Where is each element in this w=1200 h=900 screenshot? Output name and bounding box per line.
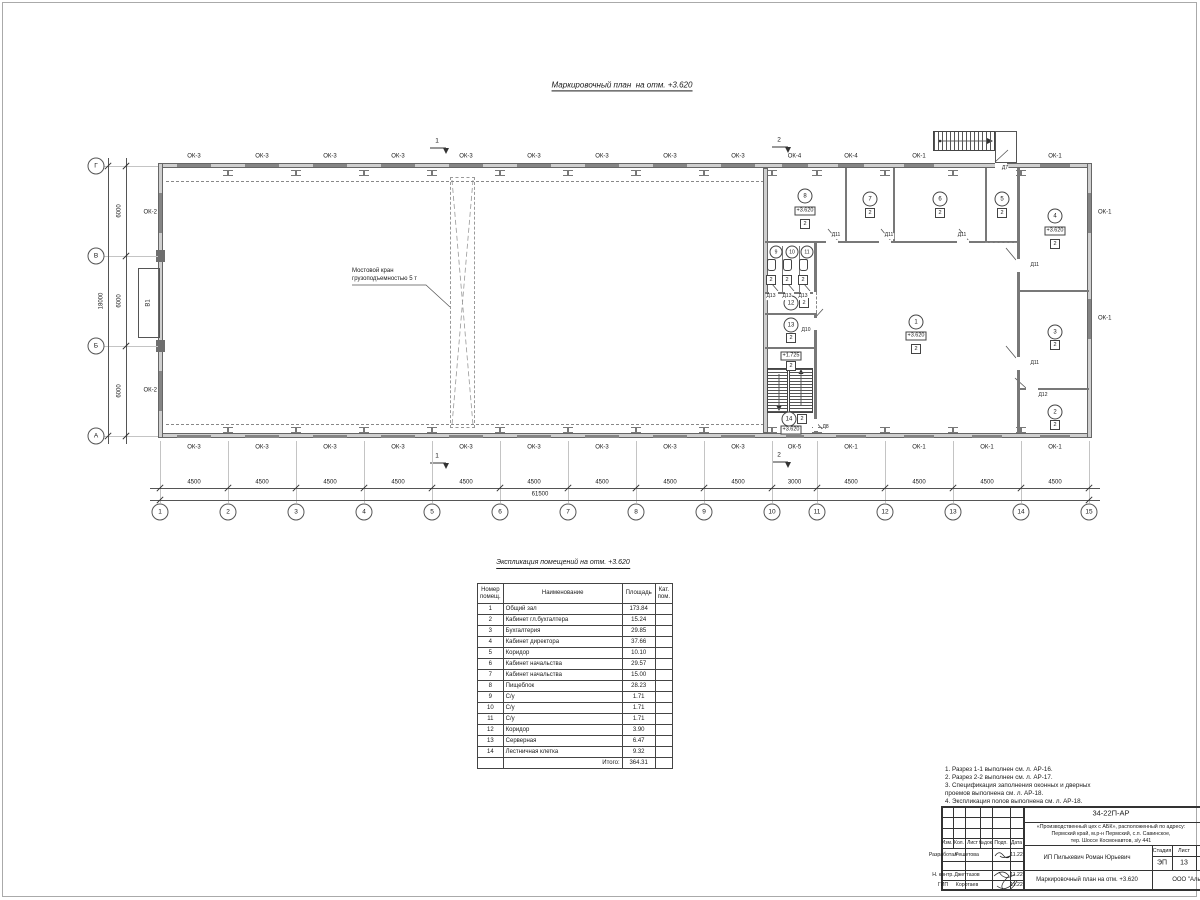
note-line: 4. Экспликация полов выполнена см. л. АР… [945, 798, 1115, 806]
window-bottom [786, 435, 804, 438]
room-number-14: 14 [782, 412, 797, 427]
table-cell: 1.71 [622, 692, 655, 703]
table-cell: Кабинет начальства [503, 659, 622, 670]
titleblock-stage-label: Стадия [1153, 848, 1172, 854]
titleblock-col-header: Дата [1011, 840, 1022, 846]
table-header: Наименование [503, 584, 622, 604]
table-row: 5Коридор10.10 [478, 648, 673, 659]
door-label: Д13 [766, 294, 776, 300]
axis-bubble-Б: Б [88, 338, 105, 355]
axis-extension [1089, 441, 1090, 503]
dim-value: 4500 [980, 480, 993, 487]
table-cell: Серверная [503, 736, 622, 747]
axis-extension [885, 441, 886, 503]
window-label-bottom: ОК-1 [912, 444, 926, 451]
table-cell: Кабинет директора [503, 637, 622, 648]
window-label-bottom: ОК-1 [980, 444, 994, 451]
door-gap [879, 240, 891, 244]
exterior-stair [933, 131, 995, 151]
table-row: 8Пищеблок28.23 [478, 681, 673, 692]
section-mark: 2 [777, 136, 781, 143]
titleblock-org: ООО "Алы [1172, 877, 1200, 883]
toilet-category: 2 [782, 275, 792, 285]
note-line: 2. Разрез 2-2 выполнен см. л. АР-17. [945, 774, 1115, 782]
axis-bubble-14: 14 [1013, 504, 1030, 521]
door-label: Д10 [801, 328, 811, 334]
axis-bubble-11: 11 [809, 504, 826, 521]
titleblock-stage-value: ЭП [1157, 860, 1167, 867]
titleblock-sheet-label: Лист [1178, 848, 1190, 854]
table-cell [655, 681, 672, 692]
axis-extension [104, 166, 158, 167]
table-cell: 3.90 [622, 725, 655, 736]
axis-bubble-15: 15 [1081, 504, 1098, 521]
table-cell: 14 [478, 747, 504, 758]
room-category: 2 [1050, 340, 1060, 350]
door-label: Д12 [1038, 393, 1048, 399]
table-row: 14Лестничная клетка9.32 [478, 747, 673, 758]
axis-extension [817, 441, 818, 503]
column-symbol [948, 432, 958, 433]
room-category: 2 [911, 344, 921, 354]
dim-total-value: 61500 [532, 492, 549, 499]
window-bottom [653, 435, 687, 438]
room-number-13: 13 [784, 318, 799, 333]
column-symbol [563, 175, 573, 176]
window-label-bottom: ОК-3 [459, 444, 473, 451]
window-bottom [836, 435, 866, 438]
table-cell [655, 758, 672, 769]
table-row: 9С/у1.71 [478, 692, 673, 703]
window-label-bottom: ОК-3 [187, 444, 201, 451]
note-line: 1. Разрез 1-1 выполнен см. л. АР-16. [945, 766, 1115, 774]
door-label: Д8 [822, 425, 829, 431]
dim-value: 4500 [459, 480, 472, 487]
window-label-bottom: ОК-3 [391, 444, 405, 451]
table-cell: 7 [478, 670, 504, 681]
window-bottom [313, 435, 347, 438]
door-gap [813, 318, 818, 330]
window-top [245, 164, 279, 167]
window-right [1088, 299, 1091, 339]
table-cell: 13 [478, 736, 504, 747]
wall-bottom [158, 433, 1092, 438]
titleblock-role: Разработал [929, 852, 957, 858]
axis-bubble-В: В [88, 248, 105, 265]
table-cell [655, 637, 672, 648]
room-category: 2 [1050, 420, 1060, 430]
door-label: Д13 [798, 294, 808, 300]
dim-value: 4500 [663, 480, 676, 487]
window-bottom [721, 435, 755, 438]
column-symbol [291, 432, 301, 433]
room-number-5: 5 [995, 192, 1010, 207]
axis-bubble-А: А [88, 428, 105, 445]
opening-dashed [985, 242, 1017, 243]
table-cell: 28.23 [622, 681, 655, 692]
column-symbol [767, 432, 777, 433]
table-row: 13Серверная6.47 [478, 736, 673, 747]
window-label-bottom: ОК-3 [323, 444, 337, 451]
titleblock-col-header: №док. [979, 840, 994, 846]
column-symbol [427, 175, 437, 176]
toilet-fixture [783, 259, 792, 271]
titleblock-line [992, 806, 993, 890]
explication-table: Номер помещ.НаименованиеПлощадьКат. пом.… [477, 583, 673, 769]
window-label-bottom: ОК-3 [731, 444, 745, 451]
axis-bubble-8: 8 [628, 504, 645, 521]
axis-bubble-3: 3 [288, 504, 305, 521]
window-label-bottom: ОК-5 [788, 444, 802, 451]
table-row: 11С/у1.71 [478, 714, 673, 725]
titleblock-role: ГИП [938, 882, 948, 888]
column-symbol [880, 432, 890, 433]
table-cell: 4 [478, 637, 504, 648]
room-number-4: 4 [1048, 209, 1063, 224]
door-label: Д11 [831, 233, 841, 239]
riser-label: В1 [146, 299, 153, 306]
column-symbol [495, 175, 505, 176]
column-symbol [563, 432, 573, 433]
window-label-bottom: ОК-3 [595, 444, 609, 451]
table-header: Площадь [622, 584, 655, 604]
window-top [653, 164, 687, 167]
titleblock-name: Коротаев [956, 882, 978, 888]
window-top [721, 164, 755, 167]
toilet-fixture [799, 259, 808, 271]
axis-extension [772, 441, 773, 503]
axis-extension [636, 441, 637, 503]
table-cell: С/у [503, 703, 622, 714]
room-category: 2 [800, 219, 810, 229]
window-top [904, 164, 934, 167]
column-symbol [427, 432, 437, 433]
window-label-left: ОК-2 [144, 210, 158, 217]
table-cell: 173.84 [622, 604, 655, 615]
window-label-bottom: ОК-3 [255, 444, 269, 451]
table-cell: 1 [478, 604, 504, 615]
window-top [1040, 164, 1070, 167]
axis-extension [104, 256, 158, 257]
door-label: Д7 [1001, 166, 1008, 172]
window-label-bottom: ОК-1 [844, 444, 858, 451]
window-label-top: ОК-1 [1048, 154, 1062, 161]
table-cell [655, 747, 672, 758]
window-label-top: ОК-3 [527, 154, 541, 161]
room-number-11: 11 [801, 246, 814, 259]
room-number-3: 3 [1048, 325, 1063, 340]
dim-value: 4500 [912, 480, 925, 487]
axis-bubble-2: 2 [220, 504, 237, 521]
door-gap [813, 419, 818, 431]
dim-value: 4500 [255, 480, 268, 487]
table-cell: 8 [478, 681, 504, 692]
titleblock-address: Пермский край, м.р-н Пермский, с.п. Сави… [1051, 831, 1170, 837]
door-gap [826, 240, 838, 244]
window-label-top: ОК-3 [391, 154, 405, 161]
room-category: 2 [1050, 239, 1060, 249]
window-label-right: ОК-1 [1098, 210, 1112, 217]
table-cell [655, 659, 672, 670]
axis-bubble-Г: Г [88, 158, 105, 175]
window-bottom [972, 435, 1002, 438]
axis-extension [500, 441, 501, 503]
room-category: 2 [786, 333, 796, 343]
table-cell [655, 714, 672, 725]
window-label-top: ОК-3 [595, 154, 609, 161]
table-cell: 29.85 [622, 626, 655, 637]
titleblock-address: тер. Шоссе Космонавтов, з/у 441 [1071, 838, 1151, 844]
window-bottom [517, 435, 551, 438]
crane-label: Мостовой кран грузоподъемностью 5 т [352, 267, 417, 283]
table-cell: Итого: [503, 758, 622, 769]
table-cell [655, 648, 672, 659]
table-cell [478, 758, 504, 769]
dim-line-total [150, 500, 1100, 501]
table-cell: Бухгалтерия [503, 626, 622, 637]
table-cell: 5 [478, 648, 504, 659]
window-bottom [585, 435, 619, 438]
dim-line-left-total [108, 158, 109, 444]
table-row: 10С/у1.71 [478, 703, 673, 714]
axis-bubble-6: 6 [492, 504, 509, 521]
axis-bubble-13: 13 [945, 504, 962, 521]
toilet-category: 2 [798, 275, 808, 285]
window-bottom [1040, 435, 1070, 438]
table-row: 6Кабинет начальства29.57 [478, 659, 673, 670]
window-top [177, 164, 211, 167]
window-label-top: ОК-3 [731, 154, 745, 161]
titleblock-date: 11.22 [1010, 882, 1023, 888]
window-left [159, 371, 162, 411]
section-mark: 1 [435, 137, 439, 144]
door-label: Д11 [957, 233, 967, 239]
table-cell: 12 [478, 725, 504, 736]
window-label-top: ОК-3 [663, 154, 677, 161]
table-cell: 37.66 [622, 637, 655, 648]
window-label-left: ОК-2 [144, 388, 158, 395]
partition [814, 241, 817, 433]
table-cell [655, 703, 672, 714]
window-top [782, 164, 808, 167]
window-top [517, 164, 551, 167]
dim-value: 3000 [788, 480, 801, 487]
table-cell: 1.71 [622, 714, 655, 725]
axis-extension [104, 346, 158, 347]
opening-dashed [816, 292, 817, 313]
table-cell: Лестничная клетка [503, 747, 622, 758]
door-gap [957, 240, 969, 244]
dim-total-left: 18000 [99, 293, 106, 310]
room-level: +3.620 [781, 426, 802, 435]
partition [893, 168, 895, 241]
room-category: 2 [797, 414, 807, 424]
table-cell [655, 670, 672, 681]
titleblock-col-header: Кол. [954, 840, 964, 846]
window-label-right: ОК-1 [1098, 316, 1112, 323]
column-symbol [631, 432, 641, 433]
table-cell [655, 725, 672, 736]
axis-bubble-9: 9 [696, 504, 713, 521]
window-bottom [449, 435, 483, 438]
table-row: 4Кабинет директора37.66 [478, 637, 673, 648]
toilet-fixture [767, 259, 776, 271]
dim-value-left: 6000 [117, 294, 124, 307]
plan-title: Маркировочный план на отм. +3.620 [552, 80, 693, 91]
table-header: Кат. пом. [655, 584, 672, 604]
dim-value: 4500 [527, 480, 540, 487]
room-number-7: 7 [863, 192, 878, 207]
table-row: 7Кабинет начальства15.00 [478, 670, 673, 681]
dim-value: 4500 [595, 480, 608, 487]
window-label-top: ОК-4 [844, 154, 858, 161]
dim-value-left: 6000 [117, 204, 124, 217]
dim-value: 4500 [391, 480, 404, 487]
titleblock-col-header: Изм. [942, 840, 953, 846]
table-cell [655, 615, 672, 626]
window-label-top: ОК-1 [912, 154, 926, 161]
table-total-row: Итого:364.31 [478, 758, 673, 769]
window-bottom [904, 435, 934, 438]
window-label-bottom: ОК-3 [663, 444, 677, 451]
room-category: 2 [865, 208, 875, 218]
window-label-top: ОК-3 [459, 154, 473, 161]
titleblock-sheet-value: 13 [1180, 860, 1188, 867]
column-symbol [291, 175, 301, 176]
table-header: Номер помещ. [478, 584, 504, 604]
titleblock-date: 11.22 [1010, 872, 1023, 878]
table-cell: Кабинет начальства [503, 670, 622, 681]
table-cell [655, 626, 672, 637]
window-bottom [177, 435, 211, 438]
landing-level: +1.725 [781, 352, 802, 361]
window-top [449, 164, 483, 167]
table-cell: 9 [478, 692, 504, 703]
column-symbol [699, 432, 709, 433]
window-bottom [381, 435, 415, 438]
axis-extension [953, 441, 954, 503]
titleblock-drawing-title: Маркировочный план на отм. +3.620 [1036, 877, 1138, 883]
table-cell: 15.00 [622, 670, 655, 681]
drawing-sheet: Маркировочный план на отм. +3.620 Мостов… [0, 0, 1200, 900]
table-cell: 1.71 [622, 703, 655, 714]
door-gap [1026, 387, 1038, 391]
room-number-2: 2 [1048, 405, 1063, 420]
axis-extension [704, 441, 705, 503]
window-top [313, 164, 347, 167]
crane-outline [450, 177, 475, 428]
table-cell: Коридор [503, 648, 622, 659]
window-bottom [245, 435, 279, 438]
dim-value-left: 6000 [117, 384, 124, 397]
table-row: 2Кабинет гл.бухгалтера15.24 [478, 615, 673, 626]
titleblock-line [1023, 806, 1025, 890]
axis-bubble-7: 7 [560, 504, 577, 521]
door-label: Д11 [884, 233, 894, 239]
column-symbol [359, 175, 369, 176]
note-line: 3. Спецификация заполнения оконных и две… [945, 782, 1115, 798]
titleblock-line [1023, 845, 1200, 846]
room-number-8: 8 [798, 189, 813, 204]
table-cell [655, 736, 672, 747]
column-symbol [699, 175, 709, 176]
door-label: Д11 [1030, 361, 1040, 367]
titleblock-doc-number: 34-22П-АР [1092, 808, 1129, 817]
axis-bubble-5: 5 [424, 504, 441, 521]
room-number-10: 10 [786, 246, 799, 259]
axis-bubble-1: 1 [152, 504, 169, 521]
table-cell: С/у [503, 714, 622, 725]
door-label: Д11 [1030, 263, 1040, 269]
axis-extension [104, 436, 158, 437]
window-label-top: ОК-4 [788, 154, 802, 161]
table-cell: 3 [478, 626, 504, 637]
window-top [838, 164, 864, 167]
table-cell [655, 692, 672, 703]
axis-extension [432, 441, 433, 503]
window-right [1088, 193, 1091, 233]
table-cell: Пищеблок [503, 681, 622, 692]
axis-extension [228, 441, 229, 503]
column-symbol [359, 432, 369, 433]
section-mark: 1 [435, 452, 439, 459]
column-symbol [948, 175, 958, 176]
dim-value: 4500 [1048, 480, 1061, 487]
table-cell: 6.47 [622, 736, 655, 747]
dim-value: 4500 [187, 480, 200, 487]
exterior-stair-landing [995, 131, 1017, 163]
dim-line-left [126, 158, 127, 444]
axis-extension [160, 441, 161, 503]
table-row: 1Общий зал173.84 [478, 604, 673, 615]
titleblock-line [941, 889, 1200, 891]
axis-bubble-4: 4 [356, 504, 373, 521]
explication-title: Экспликация помещений на отм. +3.620 [496, 559, 630, 569]
titleblock-col-header: Подп. [994, 840, 1007, 846]
titleblock-address: «Производственный цех с АБК», расположен… [1037, 824, 1185, 830]
column-symbol [812, 175, 822, 176]
stair-flight [789, 368, 813, 413]
titleblock-line [1152, 856, 1200, 857]
room-number-6: 6 [933, 192, 948, 207]
titleblock-client: ИП Пилькевич Роман Юрьевич [1044, 855, 1131, 861]
table-cell: 364.31 [622, 758, 655, 769]
room-number-1: 1 [909, 315, 924, 330]
axis-extension [1021, 441, 1022, 503]
door-gap [1016, 259, 1021, 272]
titleblock-date: 11.22 [1010, 852, 1023, 858]
window-label-top: ОК-3 [187, 154, 201, 161]
axis-bubble-12: 12 [877, 504, 894, 521]
explication-header: Номер помещ.НаименованиеПлощадьКат. пом. [478, 584, 673, 604]
window-top [381, 164, 415, 167]
table-cell: 10 [478, 703, 504, 714]
window-label-bottom: ОК-3 [527, 444, 541, 451]
titleblock-name: Решетова [955, 852, 979, 858]
partition [985, 168, 987, 241]
titleblock-col-header: Лист [967, 840, 978, 846]
table-cell: 2 [478, 615, 504, 626]
titleblock-line [1172, 845, 1173, 870]
partition [765, 313, 815, 315]
window-top [585, 164, 619, 167]
window-label-top: ОК-3 [255, 154, 269, 161]
table-row: 12Коридор3.90 [478, 725, 673, 736]
partition [765, 241, 1017, 243]
door-label: Д13 [782, 294, 792, 300]
table-cell: 15.24 [622, 615, 655, 626]
axis-extension [296, 441, 297, 503]
